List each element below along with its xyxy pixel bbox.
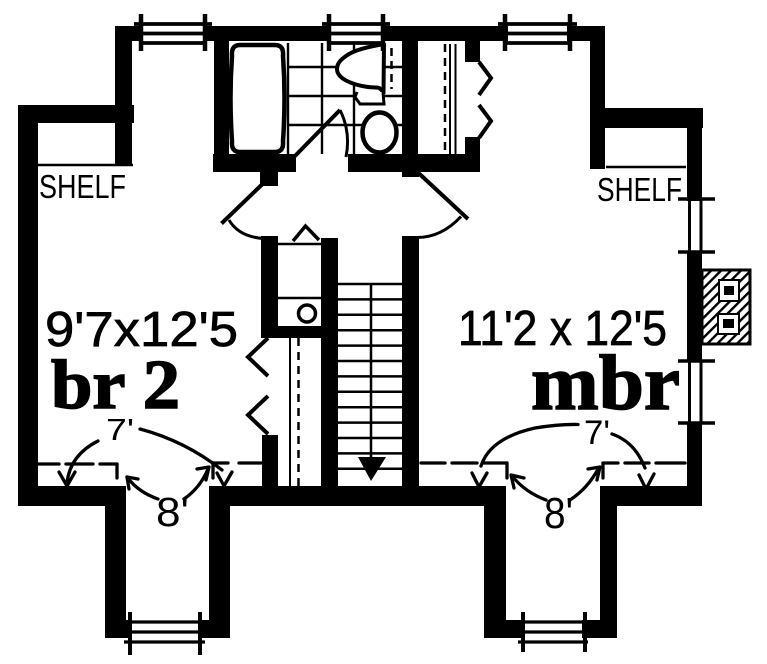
svg-text:mbr: mbr [531, 339, 680, 426]
svg-text:8': 8' [544, 489, 573, 538]
svg-text:SHELF: SHELF [39, 168, 126, 205]
svg-text:8': 8' [156, 489, 189, 535]
svg-text:7': 7' [106, 412, 134, 447]
svg-text:SHELF: SHELF [597, 171, 682, 208]
svg-text:7': 7' [584, 414, 610, 452]
